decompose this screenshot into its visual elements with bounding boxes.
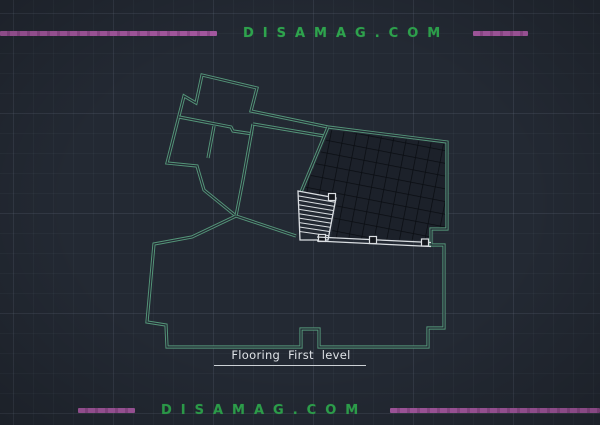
decor-bar-bottom-right bbox=[390, 408, 600, 413]
drawing-caption: Flooring First level bbox=[214, 348, 368, 362]
watermark-bottom: DISAMAG.COM bbox=[161, 403, 367, 418]
staircase bbox=[298, 191, 336, 242]
railing-post bbox=[422, 239, 429, 246]
railing-post bbox=[370, 237, 377, 244]
stair-post-bottom bbox=[319, 235, 326, 242]
decor-bar-bottom-left bbox=[78, 408, 135, 413]
caption-underline bbox=[214, 365, 366, 366]
cad-canvas: DISAMAG.COM bbox=[0, 0, 600, 425]
stair-post-top bbox=[329, 194, 336, 201]
